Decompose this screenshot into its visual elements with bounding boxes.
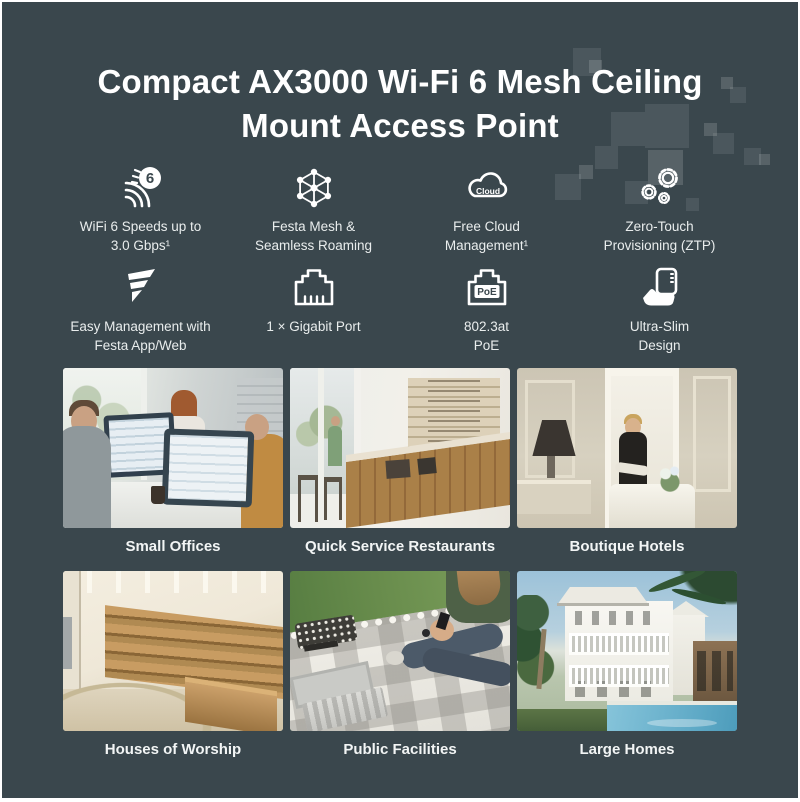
monitor-front bbox=[162, 428, 255, 507]
photo-boutique-hotels bbox=[517, 368, 737, 528]
poe-icon-label: PoE bbox=[477, 287, 497, 298]
sock bbox=[386, 651, 404, 665]
use-case-large-homes: Large Homes bbox=[517, 571, 737, 774]
ceiling-lights bbox=[63, 571, 283, 593]
customer-head bbox=[331, 416, 340, 426]
feature-label: 802.3atPoE bbox=[400, 317, 573, 356]
use-case-quick-service-restaurants: Quick Service Restaurants bbox=[290, 368, 510, 571]
photo-large-homes bbox=[517, 571, 737, 731]
feature-ultra-slim: Ultra-SlimDesign bbox=[573, 262, 746, 356]
feature-gigabit-port: 1 × Gigabit Port bbox=[227, 262, 400, 356]
lamp-base bbox=[547, 456, 555, 478]
side-table bbox=[517, 480, 591, 514]
wooden-counter bbox=[346, 432, 510, 528]
caption-public-facilities: Public Facilities bbox=[290, 741, 510, 758]
coffee-cup bbox=[151, 486, 165, 504]
title-line-1: Compact AX3000 Wi-Fi 6 Mesh Ceiling bbox=[97, 63, 702, 100]
feature-ztp: Zero-TouchProvisioning (ZTP) bbox=[573, 162, 746, 256]
wifi6-icon: 6 bbox=[54, 162, 227, 212]
ethernet-port-icon bbox=[227, 262, 400, 312]
register bbox=[385, 459, 410, 479]
window-mullion bbox=[318, 368, 324, 494]
feature-label: Festa Mesh &Seamless Roaming bbox=[227, 217, 400, 256]
use-case-public-facilities: Public Facilities bbox=[290, 571, 510, 774]
feature-wifi6-speed: 6 WiFi 6 Speeds up to3.0 Gbps¹ bbox=[54, 162, 227, 256]
tablet-stand bbox=[417, 457, 437, 475]
gears-icon bbox=[573, 162, 746, 212]
use-case-small-offices: Small Offices bbox=[63, 368, 283, 571]
bar-stool bbox=[298, 475, 318, 522]
upper-windows bbox=[575, 611, 659, 625]
wifi6-badge: 6 bbox=[145, 170, 153, 187]
cloud-icon-label: Cloud bbox=[475, 186, 499, 196]
door-lintel bbox=[605, 368, 679, 376]
festa-logo-icon bbox=[54, 262, 227, 312]
caption-large-homes: Large Homes bbox=[517, 741, 737, 758]
caption-small-offices: Small Offices bbox=[63, 538, 283, 555]
pillar bbox=[63, 617, 72, 669]
photo-houses-of-worship bbox=[63, 571, 283, 731]
feature-label: 1 × Gigabit Port bbox=[227, 317, 400, 337]
bar-stool bbox=[324, 477, 342, 520]
caption-boutique-hotels: Boutique Hotels bbox=[517, 538, 737, 555]
photo-small-offices bbox=[63, 368, 283, 528]
feature-label: Ultra-SlimDesign bbox=[573, 317, 746, 356]
photo-quick-service-restaurants bbox=[290, 368, 510, 528]
poe-port-icon: PoE bbox=[400, 262, 573, 312]
man-body bbox=[63, 426, 111, 528]
slim-design-icon bbox=[573, 262, 746, 312]
hedge bbox=[517, 709, 613, 731]
product-poster: Compact AX3000 Wi-Fi 6 Mesh Ceiling Moun… bbox=[2, 2, 798, 798]
veranda-railing bbox=[569, 665, 669, 687]
mesh-icon bbox=[227, 162, 400, 212]
feature-festa-app: Easy Management withFesta App/Web bbox=[54, 262, 227, 356]
flower-vase bbox=[655, 464, 685, 492]
page-title: Compact AX3000 Wi-Fi 6 Mesh Ceiling Moun… bbox=[2, 2, 798, 148]
use-case-houses-of-worship: Houses of Worship bbox=[63, 571, 283, 774]
use-case-gallery: Small Offices Quick Service Restaurants bbox=[63, 368, 737, 774]
title-line-2: Mount Access Point bbox=[241, 107, 559, 144]
wall-panel bbox=[693, 376, 731, 492]
feature-label: Easy Management withFesta App/Web bbox=[54, 317, 227, 356]
pool-reflection bbox=[647, 719, 717, 727]
decor-square bbox=[759, 154, 770, 165]
side-building-windows bbox=[697, 651, 733, 691]
cloud-icon: Cloud bbox=[400, 162, 573, 212]
use-case-boutique-hotels: Boutique Hotels bbox=[517, 368, 737, 571]
watch bbox=[422, 629, 430, 637]
customer-body bbox=[328, 426, 342, 466]
feature-cloud-management: Cloud Free CloudManagement¹ bbox=[400, 162, 573, 256]
caption-quick-service-restaurants: Quick Service Restaurants bbox=[290, 538, 510, 555]
balcony-railing bbox=[569, 633, 669, 655]
feature-label: WiFi 6 Speeds up to3.0 Gbps¹ bbox=[54, 217, 227, 256]
roof-shadow bbox=[557, 603, 649, 606]
feature-label: Zero-TouchProvisioning (ZTP) bbox=[573, 217, 746, 256]
photo-public-facilities bbox=[290, 571, 510, 731]
caption-houses-of-worship: Houses of Worship bbox=[63, 741, 283, 758]
feature-label: Free CloudManagement¹ bbox=[400, 217, 573, 256]
feature-poe: PoE 802.3atPoE bbox=[400, 262, 573, 356]
feature-grid: 6 WiFi 6 Speeds up to3.0 Gbps¹ Festa M bbox=[54, 162, 746, 356]
feature-mesh-roaming: Festa Mesh &Seamless Roaming bbox=[227, 162, 400, 256]
